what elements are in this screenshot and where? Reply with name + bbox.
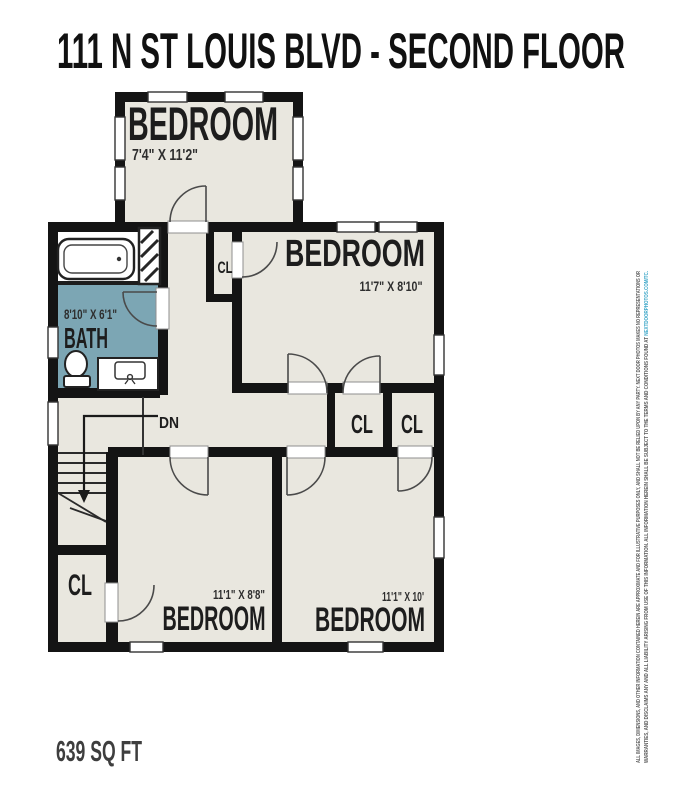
window xyxy=(48,327,58,358)
door-jamb xyxy=(156,288,169,329)
disclaimer-link: NEXTDOORPHOTOS.COM/TC. xyxy=(644,271,650,336)
bath-label: BATH xyxy=(64,323,108,355)
door-leaf xyxy=(105,583,118,622)
chimney-hatch xyxy=(139,228,160,284)
floor-plan-svg: 111 N ST LOUIS BLVD - SECOND FLOOR BEDRO… xyxy=(0,0,684,793)
sink-icon xyxy=(98,358,158,390)
window xyxy=(434,517,444,558)
area-label: 639 SQ FT xyxy=(56,736,142,768)
bedroom-top-dims: 7'4" X 11'2" xyxy=(132,147,198,164)
door-jamb xyxy=(398,446,432,458)
door-jamb xyxy=(288,382,327,394)
window xyxy=(115,167,125,200)
window xyxy=(293,167,303,200)
window xyxy=(379,222,417,232)
window xyxy=(293,117,303,160)
window xyxy=(115,117,125,160)
disclaimer: ALL IMAGES, DIMENSIONS, AND OTHER INFORM… xyxy=(636,271,650,763)
closet-bottom-left-label: CL xyxy=(68,569,92,602)
window xyxy=(130,642,163,652)
closet-hall-label: CL xyxy=(218,258,233,277)
disclaimer-line-2-text: WARRANTIES, AND DISCLAIMS ANY AND ALL LI… xyxy=(644,336,650,763)
bedroom-br-label: BEDROOM xyxy=(315,601,425,639)
window xyxy=(337,222,375,232)
bedroom-mid-label: BEDROOM xyxy=(285,233,425,275)
toilet-icon xyxy=(64,351,90,387)
window xyxy=(434,335,444,375)
door-jamb xyxy=(168,221,208,233)
bathtub-icon xyxy=(58,239,134,279)
page-title: 111 N ST LOUIS BLVD - SECOND FLOOR xyxy=(57,23,625,79)
floor-plan-page: 111 N ST LOUIS BLVD - SECOND FLOOR BEDRO… xyxy=(0,0,684,793)
closet-mid-left-label: CL xyxy=(351,409,373,439)
closet-mid-right-label: CL xyxy=(401,409,423,439)
bedroom-mid-dims: 11'7" X 8'10" xyxy=(360,278,423,294)
door-jamb xyxy=(170,446,208,458)
bedroom-top-label: BEDROOM xyxy=(128,97,278,150)
door-jamb xyxy=(343,382,380,394)
disclaimer-line-2: WARRANTIES, AND DISCLAIMS ANY AND ALL LI… xyxy=(644,271,650,763)
door-jamb xyxy=(287,446,325,458)
disclaimer-line-1: ALL IMAGES, DIMENSIONS, AND OTHER INFORM… xyxy=(636,271,642,763)
stairs-dn-label: DN xyxy=(159,415,179,432)
window xyxy=(348,642,383,652)
bath-dims: 8'10" X 6'1" xyxy=(64,307,117,322)
door-leaf xyxy=(232,242,243,278)
bedroom-bl-label: BEDROOM xyxy=(163,600,266,638)
window xyxy=(48,402,58,445)
